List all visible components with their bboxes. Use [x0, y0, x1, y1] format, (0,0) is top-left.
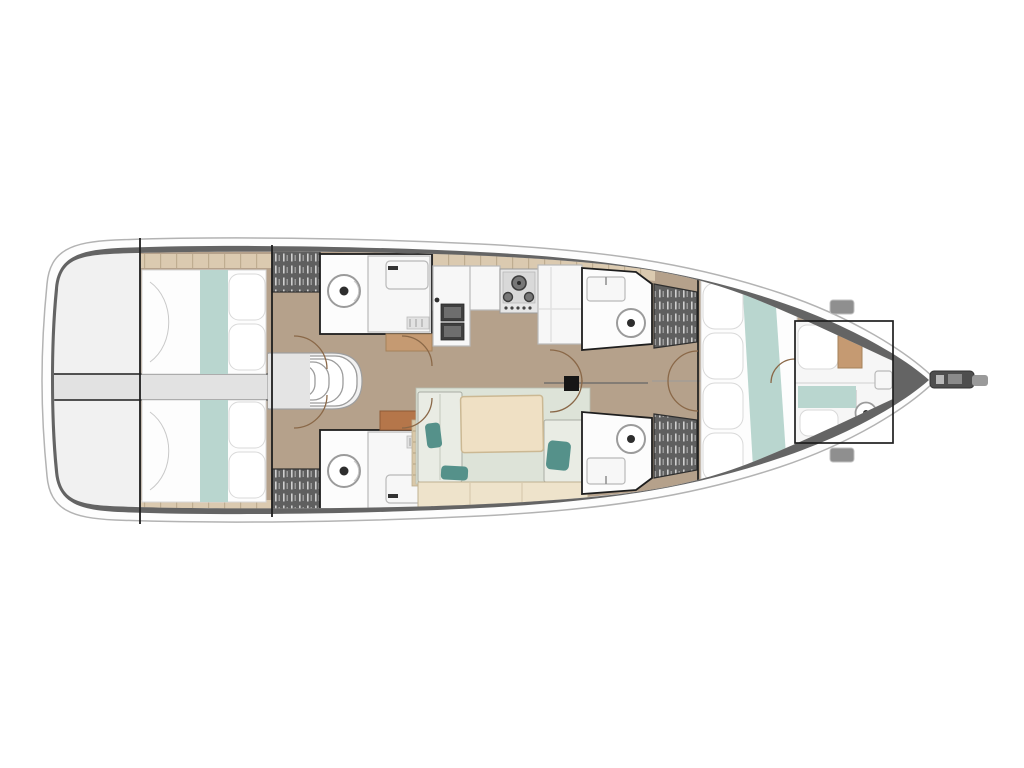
fridge-counter	[538, 265, 582, 344]
sink-basin-inner	[444, 326, 461, 337]
companionway-stairs	[268, 353, 362, 409]
bowsprit	[930, 371, 988, 388]
teal-blanket	[798, 386, 856, 408]
mast-foot	[564, 376, 579, 391]
aft-head-top	[320, 254, 432, 334]
burner	[504, 293, 513, 302]
sink-basin-inner	[444, 307, 461, 318]
engine-compartment	[48, 374, 268, 400]
sink	[875, 371, 892, 389]
vent-grille	[407, 317, 429, 329]
sink	[386, 261, 428, 289]
mid-head-bottom	[582, 412, 652, 494]
wardrobe-locker	[654, 284, 697, 348]
landing	[268, 354, 310, 408]
pillow	[703, 383, 743, 429]
stove	[500, 269, 538, 313]
salon-table	[461, 395, 544, 452]
pillow	[229, 452, 265, 498]
aft-cabin-top	[142, 270, 266, 374]
deck-hatch	[830, 448, 854, 462]
floorplan-canvas	[0, 0, 1024, 768]
bowsprit-detail	[948, 374, 962, 384]
mid-head-top	[582, 268, 652, 350]
faucet-icon	[435, 298, 440, 303]
wardrobe-locker	[272, 245, 320, 292]
yacht-floorplan	[0, 0, 1024, 768]
toilet	[328, 275, 360, 307]
pillow	[703, 333, 743, 379]
faucet-icon	[388, 266, 398, 270]
teal-cushion	[425, 422, 443, 449]
toilet	[617, 425, 645, 453]
side-trim-aft-top	[140, 254, 272, 268]
pillow	[229, 274, 265, 320]
pillow	[229, 324, 265, 370]
teal-cushion	[441, 465, 469, 480]
interior	[48, 245, 893, 516]
burner	[525, 293, 534, 302]
toilet	[617, 309, 645, 337]
salon	[416, 388, 590, 512]
toilet	[328, 455, 360, 487]
wardrobe-locker	[654, 414, 697, 478]
pillow	[229, 402, 265, 448]
deck-hatch	[830, 300, 854, 314]
aft-cabin-bottom	[142, 400, 266, 502]
teal-blanket	[200, 270, 228, 374]
teal-cushion	[545, 440, 571, 471]
anchor-roller	[972, 375, 988, 386]
teal-blanket	[200, 400, 228, 502]
bowsprit-detail	[936, 375, 944, 384]
faucet-icon	[388, 494, 398, 498]
